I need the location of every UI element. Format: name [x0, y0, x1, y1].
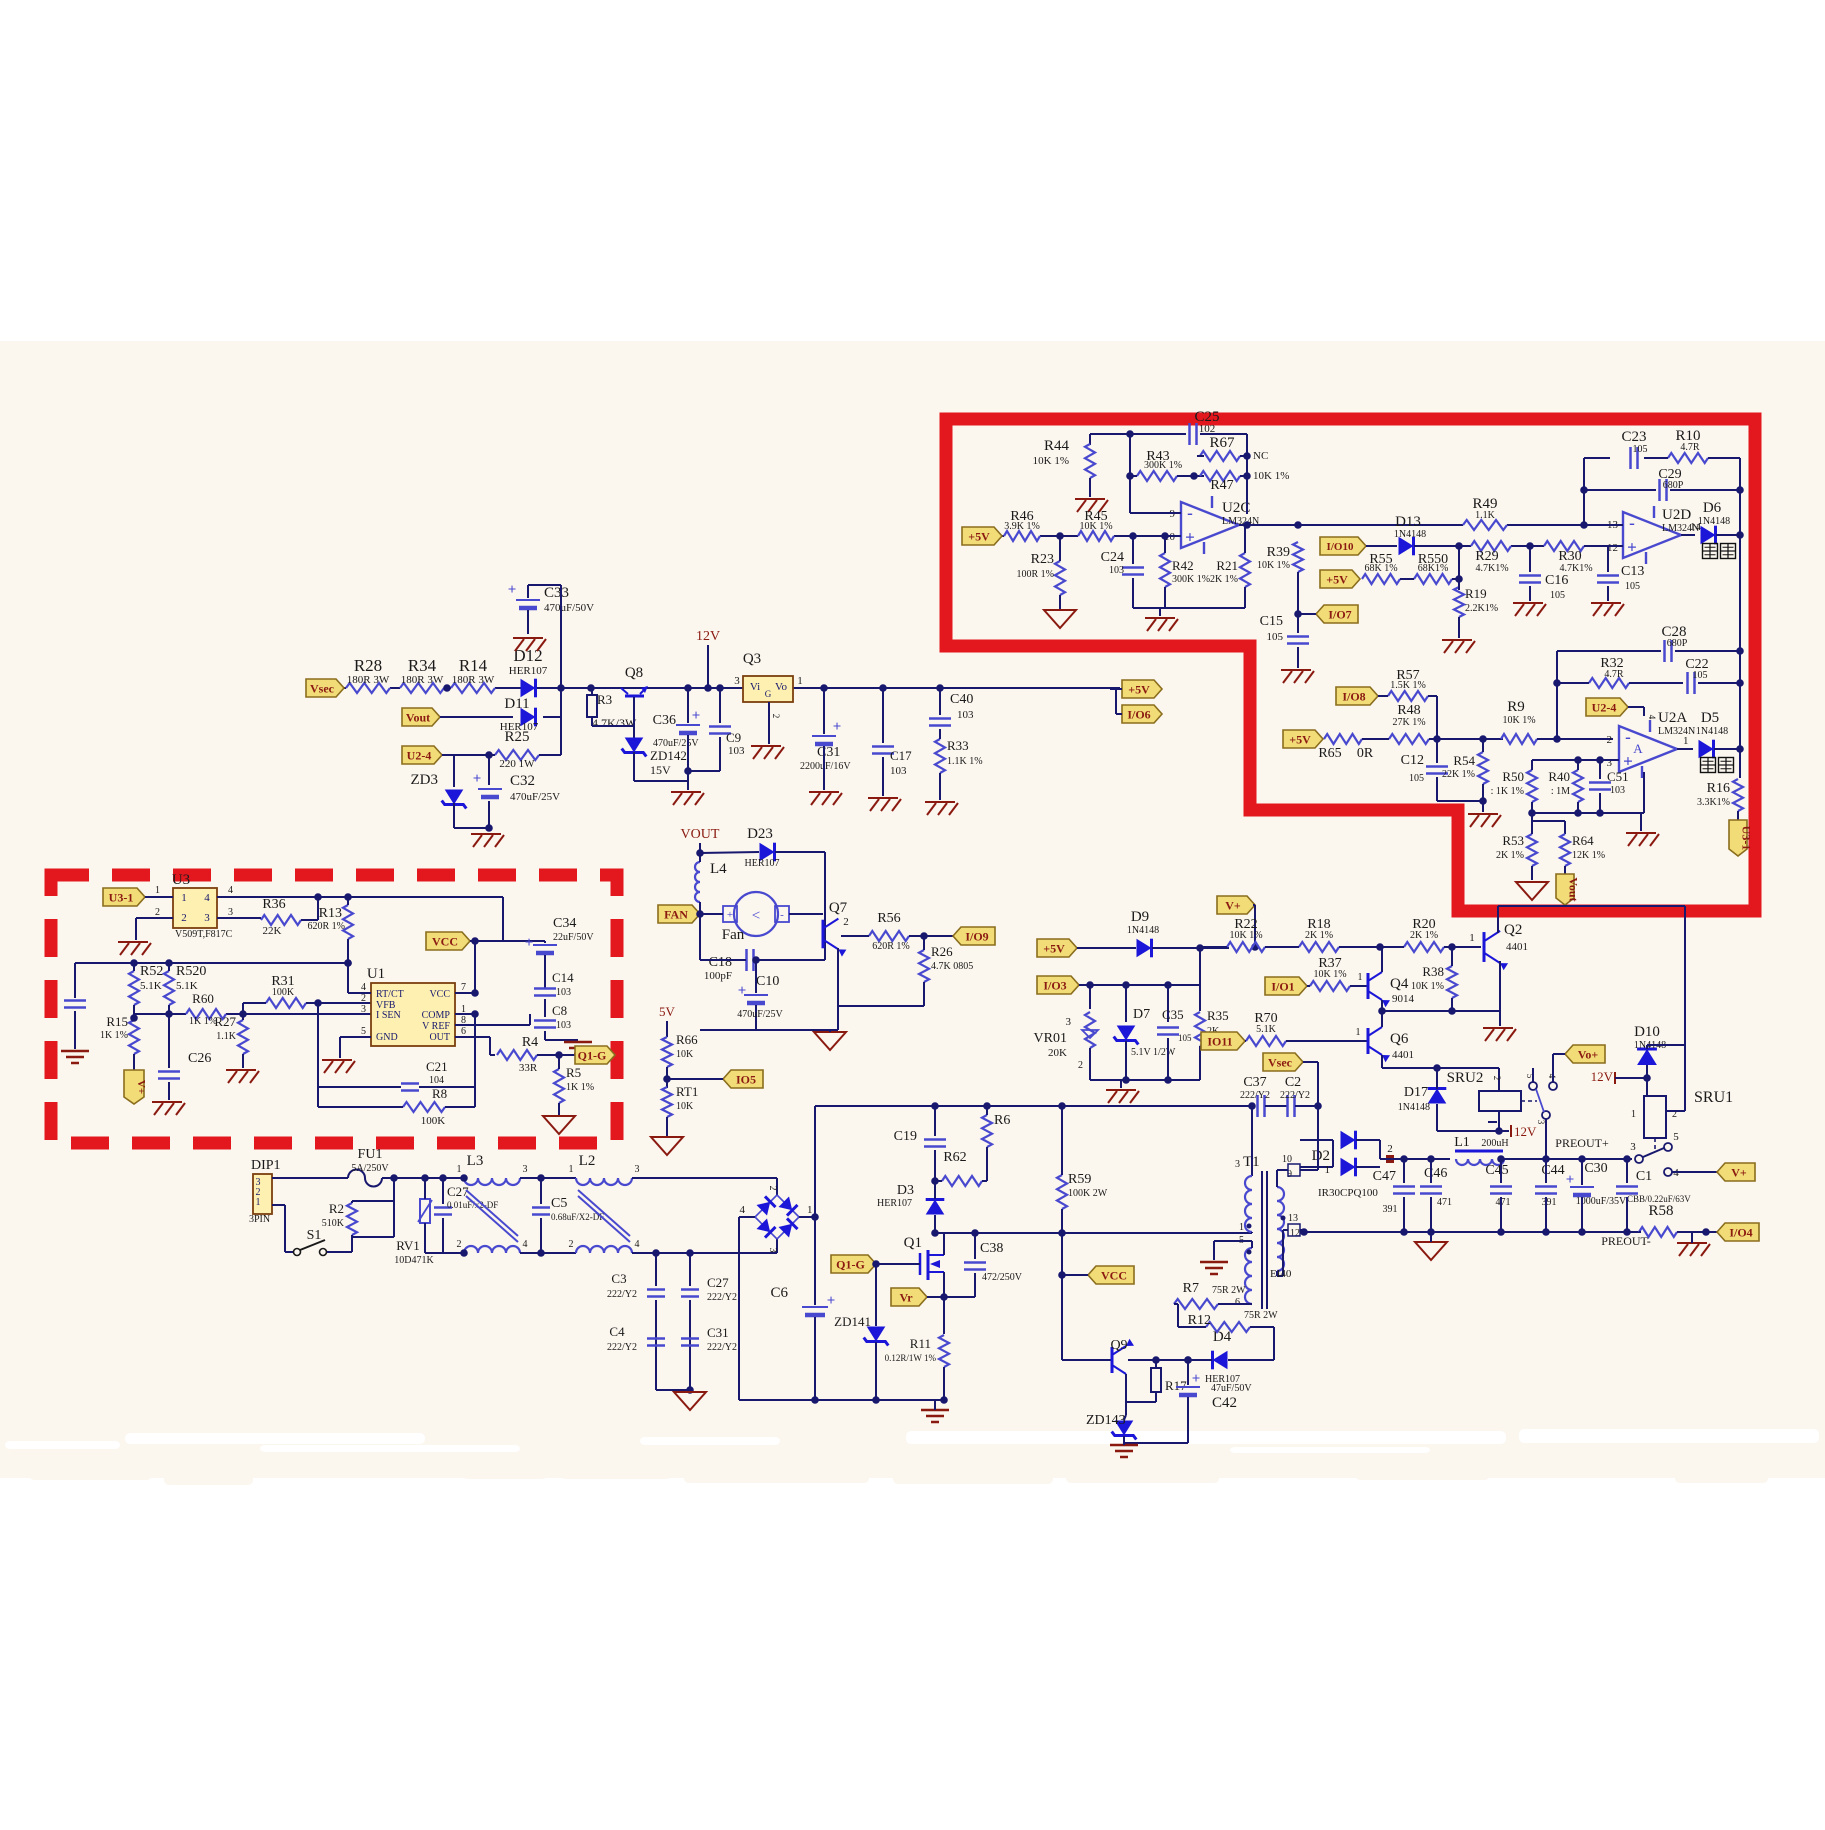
svg-text:C13: C13 [1621, 564, 1644, 579]
svg-text:Q3: Q3 [743, 651, 761, 667]
svg-text:C27: C27 [707, 1275, 729, 1290]
svg-text:+: + [1185, 528, 1195, 547]
svg-text:U2-4: U2-4 [1592, 700, 1617, 714]
svg-text:2: 2 [1078, 1060, 1083, 1071]
svg-text:100K: 100K [421, 1115, 446, 1127]
svg-text:+: + [738, 983, 747, 999]
svg-text:C42: C42 [1212, 1395, 1237, 1411]
svg-text:15V: 15V [650, 763, 671, 777]
svg-text:HER107: HER107 [745, 858, 780, 869]
svg-text:R30: R30 [1558, 549, 1581, 564]
svg-text:R13: R13 [319, 906, 342, 921]
svg-text:4401: 4401 [1392, 1049, 1414, 1061]
svg-text:+5V: +5V [1326, 572, 1348, 586]
svg-text:1N4148: 1N4148 [1394, 529, 1426, 540]
svg-text:300K 1%: 300K 1% [1144, 460, 1182, 471]
svg-text:+5V: +5V [1043, 941, 1065, 955]
svg-text:12: 12 [1290, 1228, 1300, 1239]
svg-text:C31: C31 [707, 1325, 729, 1340]
svg-text:4.7K1%: 4.7K1% [1475, 563, 1508, 574]
svg-text:471: 471 [1437, 1197, 1452, 1208]
svg-text:5.1V 1/2W: 5.1V 1/2W [1131, 1047, 1176, 1058]
svg-text:5: 5 [361, 1026, 366, 1037]
svg-text:I/O8: I/O8 [1342, 689, 1365, 703]
svg-text:105: 105 [1633, 444, 1648, 455]
svg-text:300K 1%: 300K 1% [1172, 574, 1210, 585]
svg-text:C46: C46 [1424, 1166, 1447, 1181]
svg-text:2: 2 [457, 1239, 462, 1250]
svg-text:222/Y2: 222/Y2 [1240, 1090, 1270, 1101]
svg-text:U3-1: U3-1 [1739, 826, 1753, 851]
svg-text:+: + [508, 582, 517, 598]
svg-text:22uF/50V: 22uF/50V [553, 932, 594, 943]
svg-text:L4: L4 [710, 861, 727, 877]
svg-text:391: 391 [1542, 1197, 1557, 1208]
svg-text:102: 102 [1199, 423, 1216, 435]
svg-text:I/O9: I/O9 [965, 929, 988, 943]
svg-text:C34: C34 [553, 916, 576, 931]
svg-text:GND: GND [376, 1032, 398, 1043]
svg-text:R66: R66 [676, 1032, 698, 1047]
svg-text:VR01: VR01 [1034, 1031, 1067, 1046]
svg-text:VCC: VCC [1101, 1268, 1127, 1282]
svg-text:75R 2W: 75R 2W [1212, 1285, 1246, 1296]
svg-text:222/Y2: 222/Y2 [607, 1289, 637, 1300]
svg-text:180R 3W: 180R 3W [452, 674, 495, 686]
svg-text:A: A [1633, 741, 1643, 756]
svg-text:12V: 12V [1514, 1124, 1537, 1139]
svg-text:C24: C24 [1101, 550, 1124, 565]
svg-text:C18: C18 [709, 955, 732, 970]
svg-text:68K 1%: 68K 1% [1364, 563, 1397, 574]
svg-text:C8: C8 [552, 1003, 567, 1018]
svg-text:R12: R12 [1188, 1313, 1211, 1328]
svg-text:R52: R52 [140, 964, 163, 979]
svg-text:RV1: RV1 [396, 1238, 420, 1253]
svg-text:R17: R17 [1165, 1378, 1187, 1393]
svg-text:HER107: HER107 [877, 1198, 912, 1209]
svg-text:C36: C36 [653, 713, 676, 728]
svg-text:470uF/25V: 470uF/25V [653, 738, 699, 749]
svg-text:+: + [692, 708, 701, 724]
svg-text:1: 1 [1469, 932, 1475, 944]
svg-text:C5: C5 [551, 1196, 567, 1211]
svg-text:Vr: Vr [899, 1290, 913, 1304]
svg-text:510K: 510K [322, 1218, 345, 1229]
svg-text:COMP: COMP [422, 1010, 451, 1021]
svg-text:C30: C30 [1584, 1161, 1607, 1176]
svg-text:3.3K1%: 3.3K1% [1697, 797, 1730, 808]
svg-text:3: 3 [1235, 1159, 1240, 1170]
svg-text:V REF: V REF [422, 1021, 450, 1032]
svg-text:2K 1%: 2K 1% [1496, 850, 1524, 861]
svg-text:4401: 4401 [1506, 941, 1528, 953]
svg-text:R48: R48 [1397, 703, 1420, 718]
svg-text:C45: C45 [1485, 1163, 1508, 1178]
svg-text:+5V: +5V [968, 529, 990, 543]
svg-text:4.7R: 4.7R [1680, 442, 1700, 453]
svg-text:I/O4: I/O4 [1729, 1225, 1752, 1239]
svg-text:D10: D10 [1634, 1024, 1660, 1040]
svg-text:5V: 5V [659, 1004, 676, 1019]
svg-text:+: + [1623, 752, 1633, 771]
svg-text:2: 2 [1607, 734, 1613, 746]
svg-text:220 1W: 220 1W [499, 758, 535, 770]
svg-text:U2D: U2D [1662, 507, 1691, 523]
svg-text:Vi: Vi [750, 681, 760, 693]
svg-text:4: 4 [228, 885, 233, 896]
svg-text:2K 1%: 2K 1% [1305, 930, 1333, 941]
svg-text:RT1: RT1 [676, 1084, 698, 1099]
svg-text:105: 105 [1550, 590, 1565, 601]
svg-text:10K 1%: 10K 1% [1313, 969, 1346, 980]
svg-text:R3: R3 [597, 692, 612, 707]
svg-text:D7: D7 [1133, 1007, 1150, 1022]
svg-text:R9: R9 [1507, 699, 1525, 715]
svg-text:C38: C38 [980, 1241, 1003, 1256]
svg-text:3: 3 [734, 675, 740, 687]
svg-text:10K: 10K [676, 1049, 694, 1060]
svg-text:Q6: Q6 [1390, 1031, 1409, 1047]
svg-text:ZD143: ZD143 [1086, 1413, 1126, 1428]
svg-text:R11: R11 [910, 1336, 931, 1351]
svg-text:R40: R40 [1548, 769, 1570, 784]
svg-text:D9: D9 [1131, 909, 1149, 925]
svg-text:75R 2W: 75R 2W [1244, 1310, 1278, 1321]
svg-text:27K 1%: 27K 1% [1392, 717, 1425, 728]
svg-text:105: 105 [1178, 1033, 1192, 1043]
svg-text:2.2K1%: 2.2K1% [1465, 603, 1498, 614]
svg-text:V+: V+ [135, 1080, 147, 1094]
svg-text:C6: C6 [770, 1285, 788, 1301]
svg-text:SRU2: SRU2 [1447, 1070, 1484, 1086]
svg-text:105: 105 [1625, 581, 1640, 592]
svg-text:10K 1%: 10K 1% [1411, 981, 1444, 992]
svg-text:V+: V+ [1731, 1165, 1747, 1179]
svg-text:I/O1: I/O1 [1271, 979, 1294, 993]
svg-text:4: 4 [1647, 715, 1657, 720]
svg-text:1: 1 [1239, 1222, 1244, 1233]
svg-text:R28: R28 [354, 656, 382, 675]
svg-text:10K 1%: 10K 1% [1257, 560, 1290, 571]
svg-text:: 1K 1%: : 1K 1% [1491, 786, 1524, 797]
svg-text:ZD142: ZD142 [650, 748, 687, 763]
svg-text:20K: 20K [1048, 1047, 1067, 1059]
svg-text:Q1: Q1 [904, 1235, 922, 1251]
svg-text:U1: U1 [367, 966, 385, 982]
svg-text:R62: R62 [943, 1150, 966, 1165]
svg-text:HER107: HER107 [509, 665, 548, 677]
svg-text:2K 1%: 2K 1% [1210, 574, 1238, 585]
svg-text:I/O3: I/O3 [1043, 978, 1066, 992]
svg-text:22K 1%: 22K 1% [1442, 769, 1475, 780]
svg-text:R19: R19 [1465, 586, 1487, 601]
svg-text:R42: R42 [1172, 558, 1194, 573]
svg-text:RT/CT: RT/CT [376, 989, 404, 1000]
svg-text:1: 1 [1631, 1109, 1636, 1120]
svg-text:C35: C35 [1162, 1007, 1184, 1022]
svg-text:1K 1%: 1K 1% [100, 1030, 128, 1041]
svg-text:3: 3 [523, 1164, 528, 1175]
svg-text:3: 3 [361, 1004, 366, 1015]
svg-text:C31: C31 [817, 745, 840, 760]
svg-text:R47: R47 [1210, 478, 1233, 493]
svg-text:C19: C19 [894, 1129, 917, 1144]
svg-text:R25: R25 [504, 729, 529, 745]
svg-text:222/Y2: 222/Y2 [607, 1342, 637, 1353]
svg-text:68K1%: 68K1% [1418, 563, 1449, 574]
svg-text:5A/250V: 5A/250V [351, 1163, 389, 1174]
svg-text:R7: R7 [1183, 1281, 1199, 1296]
svg-text:12K 1%: 12K 1% [1572, 850, 1605, 861]
svg-text:-: - [1625, 728, 1631, 747]
svg-text:103: 103 [890, 765, 907, 777]
svg-text:R39: R39 [1267, 545, 1290, 560]
svg-text:680P: 680P [1667, 638, 1688, 649]
svg-text:9014: 9014 [1392, 993, 1415, 1005]
svg-text:D17: D17 [1404, 1085, 1428, 1100]
svg-text:C2: C2 [1285, 1075, 1301, 1090]
svg-text:C21: C21 [426, 1059, 448, 1074]
svg-text:R35: R35 [1207, 1008, 1229, 1023]
svg-text:472/250V: 472/250V [982, 1272, 1023, 1283]
svg-text:100K: 100K [272, 987, 295, 998]
svg-text:: 1M: : 1M [1551, 786, 1570, 797]
svg-text:103: 103 [1610, 785, 1625, 796]
svg-text:4.7R: 4.7R [1604, 669, 1624, 680]
svg-text:I/O10: I/O10 [1327, 541, 1354, 553]
svg-text:L3: L3 [467, 1153, 484, 1169]
svg-text:Vo+: Vo+ [1578, 1047, 1599, 1061]
svg-text:I/O6: I/O6 [1127, 707, 1150, 721]
svg-text:1K 1%: 1K 1% [189, 1016, 217, 1027]
svg-text:R29: R29 [1475, 549, 1498, 564]
svg-text:6: 6 [1235, 1297, 1240, 1308]
svg-text:3: 3 [1066, 1016, 1072, 1028]
svg-text:R59: R59 [1068, 1172, 1091, 1187]
svg-text:1N4148: 1N4148 [1696, 726, 1728, 737]
svg-text:R60: R60 [192, 991, 214, 1006]
svg-text:10K 1%: 10K 1% [1033, 455, 1069, 467]
svg-text:C40: C40 [950, 692, 973, 707]
svg-text:13: 13 [1288, 1213, 1298, 1224]
svg-text:FAN: FAN [664, 907, 688, 921]
svg-text:Q7: Q7 [829, 900, 848, 916]
svg-text:Fan: Fan [722, 927, 745, 943]
svg-text:1.1K 1%: 1.1K 1% [947, 756, 983, 767]
svg-text:2: 2 [843, 916, 849, 928]
svg-text:SRU1: SRU1 [1694, 1089, 1733, 1106]
svg-text:R26: R26 [931, 944, 953, 959]
svg-text:2: 2 [771, 714, 781, 719]
svg-text:+: + [727, 909, 733, 921]
svg-text:V509T,F817C: V509T,F817C [175, 929, 233, 940]
svg-text:C32: C32 [510, 773, 535, 789]
svg-text:104: 104 [429, 1075, 444, 1086]
svg-text:Q1-G: Q1-G [836, 1257, 865, 1271]
svg-text:1: 1 [807, 1204, 813, 1216]
svg-text:100pF: 100pF [704, 970, 732, 982]
svg-text:C15: C15 [1260, 614, 1283, 629]
svg-text:IR30CPQ100: IR30CPQ100 [1318, 1187, 1378, 1199]
svg-text:Q8: Q8 [625, 665, 643, 681]
svg-text:R6: R6 [994, 1113, 1010, 1128]
svg-text:R50: R50 [1502, 769, 1524, 784]
svg-text:Q1-G: Q1-G [578, 1048, 607, 1062]
svg-text:NC: NC [1253, 450, 1268, 462]
svg-text:D23: D23 [747, 826, 773, 842]
svg-text:2200uF/16V: 2200uF/16V [800, 761, 851, 772]
svg-text:3: 3 [1607, 757, 1613, 769]
svg-text:47uF/50V: 47uF/50V [1211, 1383, 1252, 1394]
svg-text:R4: R4 [522, 1035, 538, 1050]
svg-text:1: 1 [1325, 1164, 1331, 1176]
svg-text:3: 3 [204, 912, 210, 924]
svg-text:D2: D2 [1312, 1148, 1330, 1164]
svg-text:12V: 12V [696, 629, 720, 644]
svg-text:200uH: 200uH [1481, 1138, 1508, 1149]
svg-text:+: + [1627, 538, 1637, 557]
svg-text:C47: C47 [1373, 1169, 1396, 1184]
svg-text:1: 1 [1356, 1027, 1361, 1038]
svg-text:C23: C23 [1621, 429, 1646, 445]
svg-text:4: 4 [204, 892, 210, 904]
svg-text:+: + [833, 719, 842, 735]
svg-text:3: 3 [1630, 1141, 1636, 1153]
svg-text:4.7K 0805: 4.7K 0805 [931, 961, 973, 972]
svg-text:R33: R33 [947, 738, 969, 753]
svg-text:4: 4 [361, 982, 366, 993]
svg-text:R23: R23 [1031, 552, 1054, 567]
svg-text:R16: R16 [1707, 781, 1730, 796]
svg-text:C26: C26 [188, 1051, 211, 1066]
svg-text:-: - [1629, 514, 1635, 533]
svg-text:Q9: Q9 [1110, 1338, 1127, 1353]
svg-text:R58: R58 [1648, 1203, 1673, 1219]
svg-text:R34: R34 [408, 656, 437, 675]
svg-text:D11: D11 [504, 696, 529, 712]
svg-text:R14: R14 [459, 656, 488, 675]
svg-text:470uF/25V: 470uF/25V [510, 791, 560, 803]
svg-text:U2-4: U2-4 [407, 748, 432, 762]
svg-text:R15: R15 [106, 1014, 128, 1029]
svg-text:R5: R5 [566, 1065, 581, 1080]
svg-text:2: 2 [155, 907, 160, 918]
svg-text:OUT: OUT [429, 1032, 450, 1043]
svg-text:-: - [1187, 504, 1193, 523]
svg-text:4: 4 [635, 1239, 640, 1250]
svg-text:180R 3W: 180R 3W [401, 674, 444, 686]
svg-text:1: 1 [256, 1197, 261, 1208]
svg-text:Q4: Q4 [1390, 976, 1409, 992]
svg-text:10D471K: 10D471K [394, 1255, 434, 1266]
svg-text:100K 2W: 100K 2W [1068, 1188, 1108, 1199]
svg-text:C12: C12 [1401, 753, 1424, 768]
svg-text:22K: 22K [263, 925, 282, 937]
svg-text:105: 105 [1409, 773, 1424, 784]
svg-text:4: 4 [740, 1204, 746, 1216]
svg-text:Vout: Vout [1566, 877, 1580, 901]
svg-text:103: 103 [728, 745, 745, 757]
svg-text:PREOUT-: PREOUT- [1601, 1234, 1651, 1248]
svg-text:Vo: Vo [775, 681, 788, 693]
svg-text:C4: C4 [609, 1324, 625, 1339]
svg-text:470uF/25V: 470uF/25V [737, 1009, 783, 1020]
svg-text:1.1K: 1.1K [1475, 510, 1496, 521]
svg-text:33R: 33R [519, 1062, 538, 1074]
svg-text:1: 1 [797, 675, 803, 687]
svg-text:C16: C16 [1545, 573, 1568, 588]
svg-text:EI40: EI40 [1270, 1268, 1292, 1280]
svg-text:222/Y2: 222/Y2 [707, 1292, 737, 1303]
svg-text:3: 3 [635, 1164, 640, 1175]
svg-text:3PIN: 3PIN [249, 1214, 270, 1225]
svg-text:222/Y2: 222/Y2 [707, 1342, 737, 1353]
svg-text:+: + [473, 771, 482, 787]
svg-text:G: G [765, 689, 772, 699]
svg-text:R2: R2 [329, 1201, 344, 1216]
svg-text:1.1K: 1.1K [216, 1031, 237, 1042]
svg-text:10K 1%: 10K 1% [1229, 930, 1262, 941]
svg-text:R21: R21 [1216, 558, 1238, 573]
svg-text:U2A: U2A [1658, 710, 1687, 726]
svg-text:R520: R520 [176, 964, 206, 979]
svg-text:C37: C37 [1243, 1075, 1266, 1090]
svg-text:FU1: FU1 [358, 1147, 383, 1162]
svg-text:4: 4 [523, 1239, 528, 1250]
svg-text:C1: C1 [1636, 1169, 1652, 1184]
svg-text:3.9K 1%: 3.9K 1% [1004, 521, 1040, 532]
svg-text:3: 3 [1536, 1120, 1546, 1125]
svg-text:ZD141: ZD141 [834, 1314, 871, 1329]
svg-text:R8: R8 [432, 1086, 447, 1101]
svg-text:5: 5 [1673, 1131, 1679, 1143]
svg-text:1: 1 [181, 892, 187, 904]
svg-text:10K 1%: 10K 1% [1079, 521, 1112, 532]
svg-text:7: 7 [461, 982, 466, 993]
svg-text:2: 2 [181, 912, 187, 924]
svg-text:I SEN: I SEN [376, 1010, 401, 1021]
svg-text:+: + [827, 1293, 836, 1309]
svg-text:R54: R54 [1453, 753, 1475, 768]
svg-text:Q2: Q2 [1504, 922, 1522, 938]
svg-text:103: 103 [957, 709, 974, 721]
svg-text:D6: D6 [1703, 500, 1722, 516]
svg-text:100R 1%: 100R 1% [1017, 569, 1055, 580]
svg-text:L1: L1 [1454, 1135, 1470, 1150]
svg-text:R65: R65 [1318, 746, 1341, 761]
svg-text:R44: R44 [1044, 438, 1070, 454]
svg-text:103: 103 [556, 1020, 571, 1031]
svg-text:C3: C3 [611, 1271, 626, 1286]
svg-text:DIP1: DIP1 [251, 1158, 281, 1173]
svg-text:1000uF/35V: 1000uF/35V [1576, 1196, 1627, 1207]
svg-text:180R 3W: 180R 3W [347, 674, 390, 686]
svg-text:LM324N: LM324N [1658, 726, 1695, 737]
svg-text:R38: R38 [1422, 964, 1444, 979]
svg-text:D5: D5 [1701, 710, 1719, 726]
svg-text:I/O7: I/O7 [1328, 607, 1351, 621]
svg-text:C33: C33 [544, 585, 569, 601]
svg-text:5.1K: 5.1K [140, 980, 162, 992]
svg-text:3: 3 [767, 1248, 778, 1253]
svg-text:C14: C14 [552, 970, 574, 985]
svg-text:D3: D3 [897, 1183, 914, 1198]
svg-text:C51: C51 [1607, 769, 1629, 784]
svg-text:2K 1%: 2K 1% [1410, 930, 1438, 941]
svg-text:391: 391 [1383, 1204, 1398, 1215]
svg-text:1: 1 [569, 1164, 574, 1175]
